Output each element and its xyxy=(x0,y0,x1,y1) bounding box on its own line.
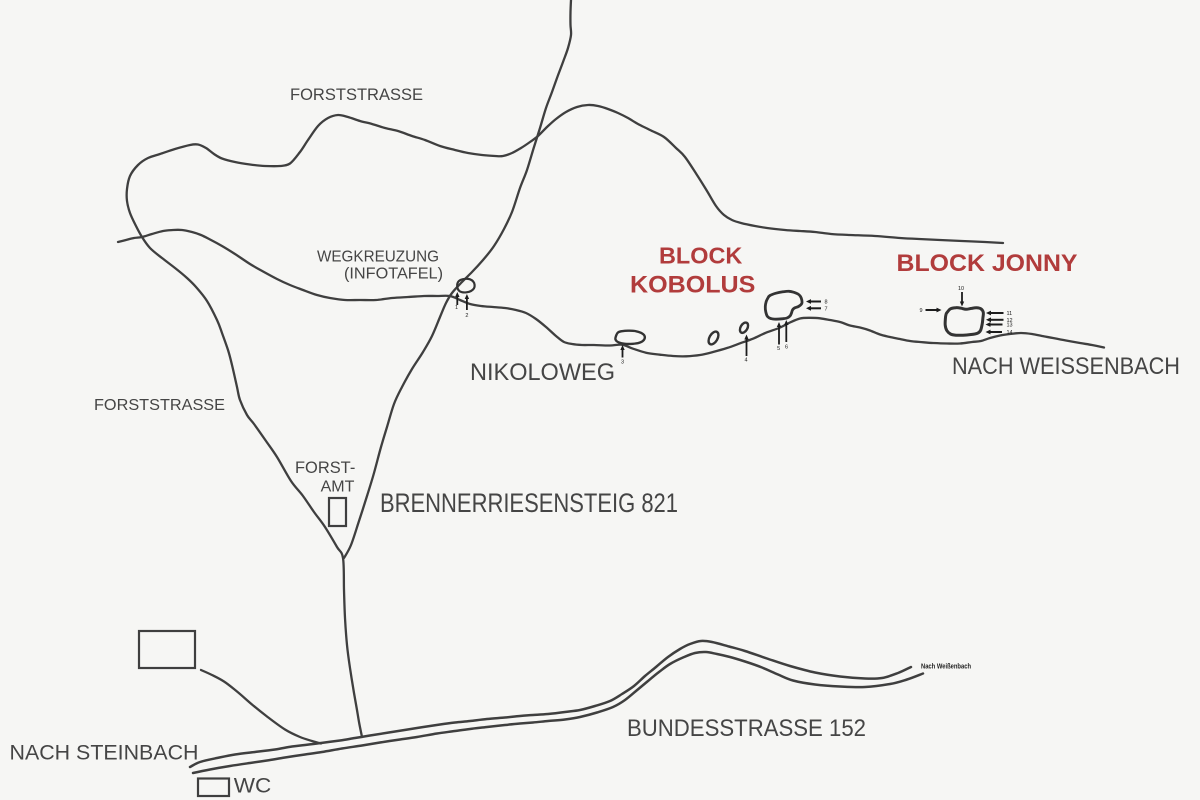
svg-text:1: 1 xyxy=(455,305,458,311)
svg-text:KOBOLUS: KOBOLUS xyxy=(630,271,755,298)
svg-text:8: 8 xyxy=(825,300,828,306)
svg-text:BLOCK JONNY: BLOCK JONNY xyxy=(897,250,1078,277)
svg-text:BRENNERRIESENSTEIG 821: BRENNERRIESENSTEIG 821 xyxy=(380,488,678,518)
svg-text:WC: WC xyxy=(234,775,271,798)
svg-text:FORST-: FORST- xyxy=(295,458,355,477)
svg-text:3: 3 xyxy=(621,360,624,366)
svg-text:NACH STEINBACH: NACH STEINBACH xyxy=(10,741,199,765)
svg-text:11: 11 xyxy=(1007,311,1013,317)
svg-text:Nach Weißenbach: Nach Weißenbach xyxy=(921,662,971,671)
svg-text:BUNDESSTRASSE 152: BUNDESSTRASSE 152 xyxy=(627,716,866,742)
svg-text:WEGKREUZUNG: WEGKREUZUNG xyxy=(317,248,439,265)
svg-text:NACH WEISSENBACH: NACH WEISSENBACH xyxy=(952,354,1180,380)
svg-text:5: 5 xyxy=(777,346,780,352)
svg-text:(INFOTAFEL): (INFOTAFEL) xyxy=(344,266,443,283)
svg-text:9: 9 xyxy=(919,308,922,314)
svg-text:10: 10 xyxy=(958,286,964,292)
svg-text:13: 13 xyxy=(1007,323,1013,329)
svg-text:AMT: AMT xyxy=(321,478,355,495)
svg-text:FORSTSTRASSE: FORSTSTRASSE xyxy=(94,397,225,414)
svg-text:14: 14 xyxy=(1007,330,1013,336)
svg-text:NIKOLOWEG: NIKOLOWEG xyxy=(470,360,615,386)
svg-text:7: 7 xyxy=(825,307,828,313)
svg-text:2: 2 xyxy=(465,313,468,319)
svg-text:6: 6 xyxy=(785,345,788,351)
svg-text:BLOCK: BLOCK xyxy=(659,243,743,269)
svg-text:4: 4 xyxy=(744,358,747,364)
svg-text:FORSTSTRASSE: FORSTSTRASSE xyxy=(290,86,423,104)
